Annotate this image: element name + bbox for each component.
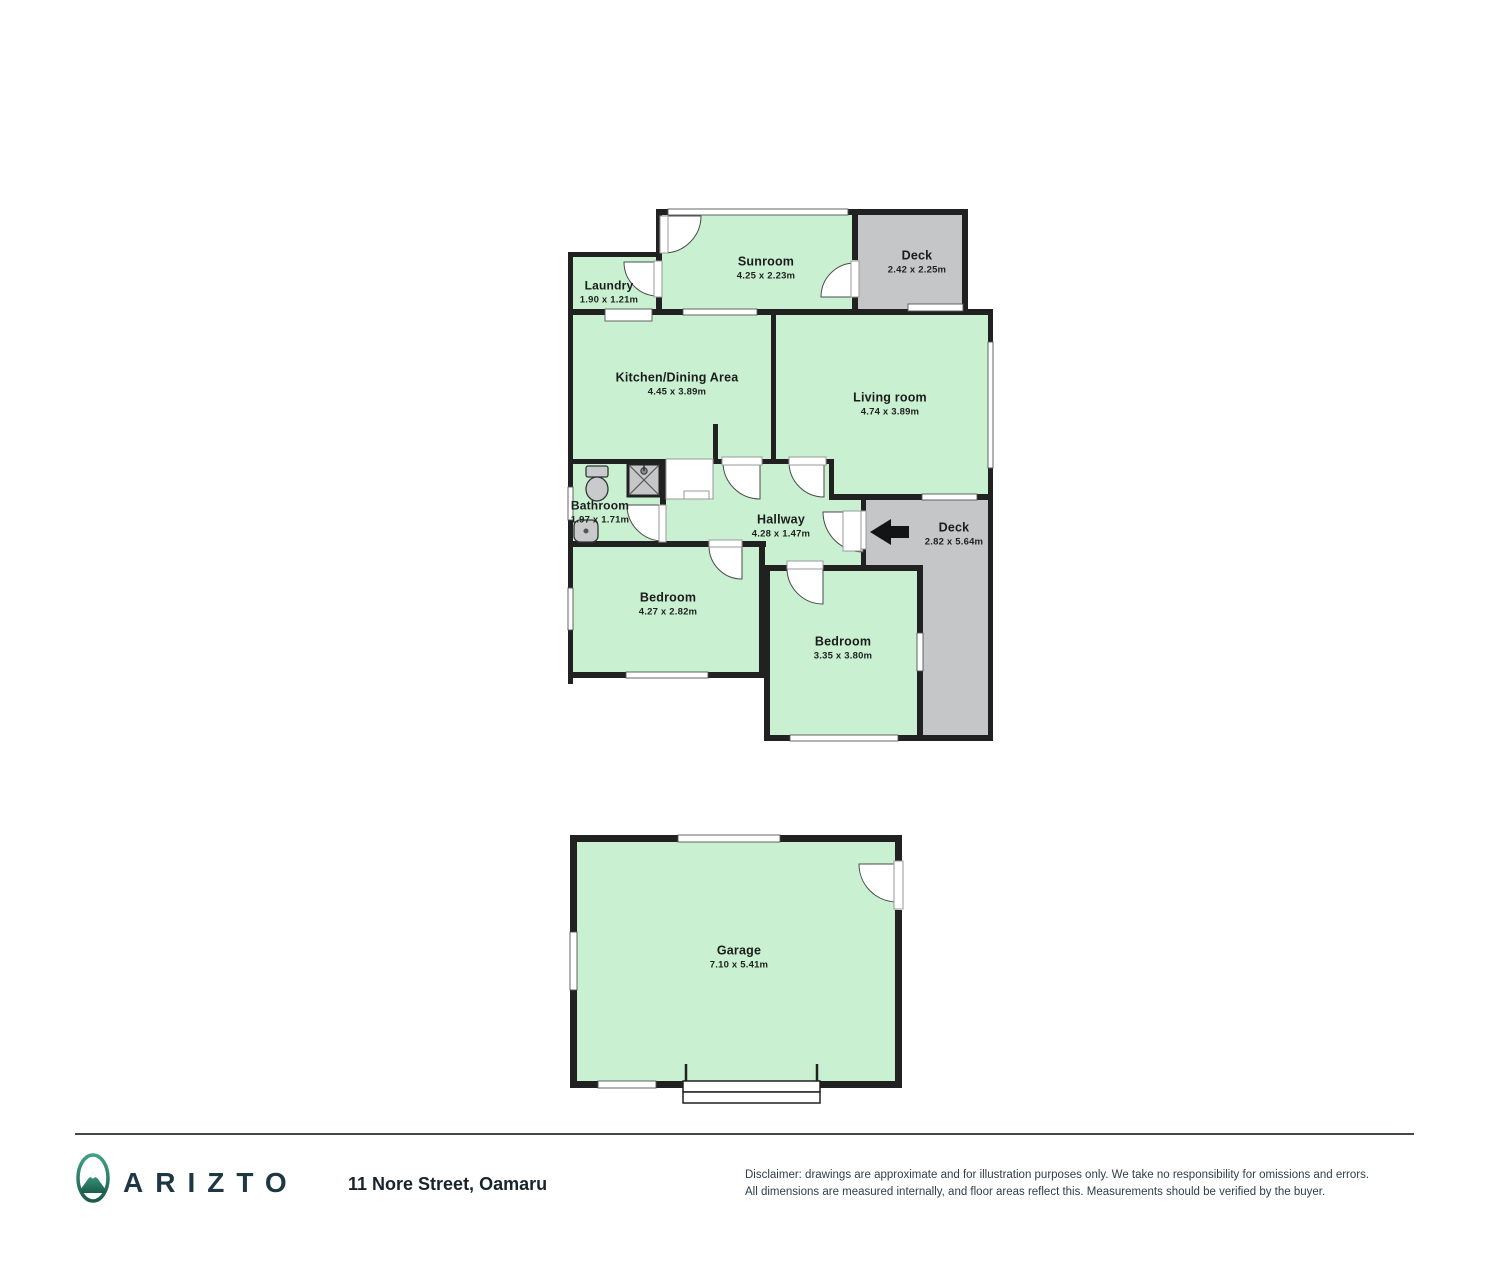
room-label-deck-side: Deck 2.82 x 5.64m	[925, 521, 983, 548]
footer-address: 11 Nore Street, Oamaru	[348, 1174, 547, 1195]
arizto-logo-icon	[74, 1151, 114, 1207]
floorplan-page: Sunroom 4.25 x 2.23m Deck 2.42 x 2.25m L…	[0, 0, 1489, 1280]
shower-icon	[628, 464, 660, 496]
disclaimer-line-1: Disclaimer: drawings are approximate and…	[745, 1167, 1435, 1184]
footer-disclaimer: Disclaimer: drawings are approximate and…	[745, 1167, 1435, 1200]
room-label-laundry: Laundry 1.90 x 1.21m	[580, 279, 638, 306]
disclaimer-line-2: All dimensions are measured internally, …	[745, 1184, 1435, 1201]
room-label-garage: Garage 7.10 x 5.41m	[710, 944, 768, 971]
footer-divider	[75, 1133, 1414, 1135]
arizto-wordmark: ARIZTO	[123, 1167, 299, 1199]
room-label-living-room: Living room 4.74 x 3.89m	[853, 391, 927, 418]
room-label-sunroom: Sunroom 4.25 x 2.23m	[737, 255, 795, 282]
room-label-kitchen-dining: Kitchen/Dining Area 4.45 x 3.89m	[616, 371, 739, 398]
toilet-icon	[586, 466, 608, 501]
room-label-bedroom-left: Bedroom 4.27 x 2.82m	[639, 591, 697, 618]
floorplan-drawing	[0, 0, 1489, 1280]
room-label-deck-top: Deck 2.42 x 2.25m	[888, 249, 946, 276]
room-label-bathroom: Bathroom 1.97 x 1.71m	[571, 499, 629, 526]
room-label-bedroom-right: Bedroom 3.35 x 3.80m	[814, 635, 872, 662]
room-label-hallway: Hallway 4.28 x 1.47m	[752, 513, 810, 540]
